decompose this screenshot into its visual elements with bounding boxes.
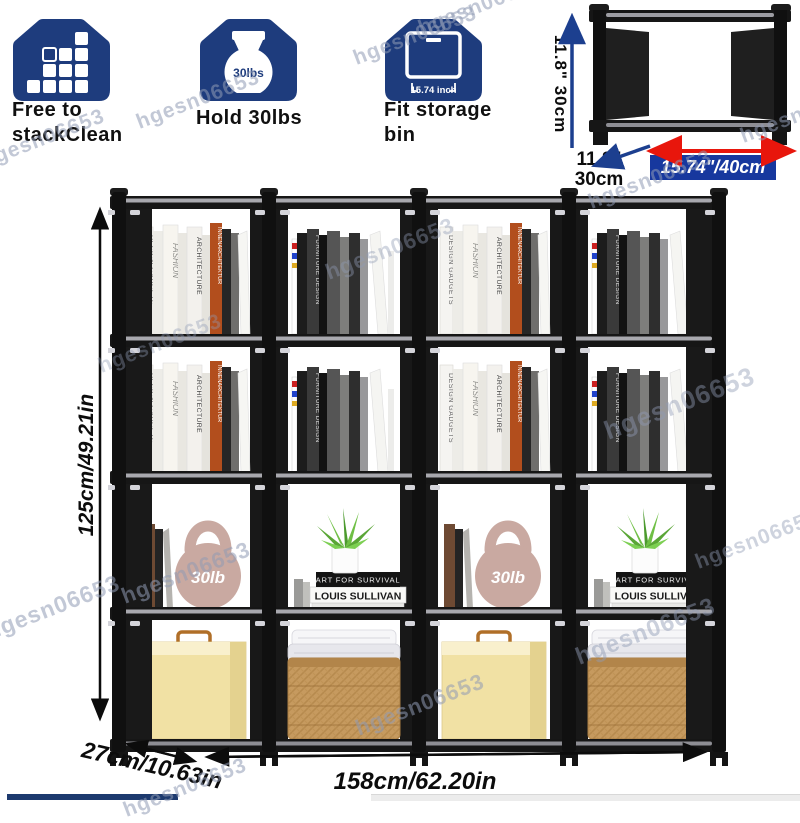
kettlebell-icon-text: 30lbs xyxy=(233,66,264,80)
feature-label-line1: Hold 30lbs xyxy=(196,106,302,131)
feature-label-line2: stackClean xyxy=(12,123,123,148)
unit-width-label: 15.74"/40cm xyxy=(650,155,776,180)
unit-depth-label: 11.8" 30cm xyxy=(566,150,632,190)
storage-bin-icon-text: 15.74 inch xyxy=(411,85,457,96)
watermark: hgesn06653 xyxy=(0,570,124,646)
feature-label-line2: bin xyxy=(384,123,492,148)
feature-label-bin: Fit storage bin xyxy=(384,98,492,148)
shelf-width-label: 158cm/62.20in xyxy=(320,768,510,796)
feature-label-hold: Hold 30lbs xyxy=(196,106,302,131)
feature-label-line1: Fit storage xyxy=(384,98,492,123)
bottom-navy-strip xyxy=(7,794,178,800)
shelf-height-label: 125cm/49.21in xyxy=(75,370,99,560)
stack-cubes-icon xyxy=(13,17,110,101)
single-cube-unit-photo xyxy=(585,2,795,150)
shelf-photo: DESIGN GADGETS FASHION ARCHITECTURE INNE… xyxy=(108,188,728,768)
kettlebell-icon: 30lbs xyxy=(200,17,297,101)
unit-height-label: 11.8" 30cm xyxy=(550,21,570,147)
storage-bin-icon: 15.74 inch xyxy=(385,17,482,101)
feature-label-stack: Free to stackClean xyxy=(12,98,123,148)
feature-label-line1: Free to xyxy=(12,98,123,123)
